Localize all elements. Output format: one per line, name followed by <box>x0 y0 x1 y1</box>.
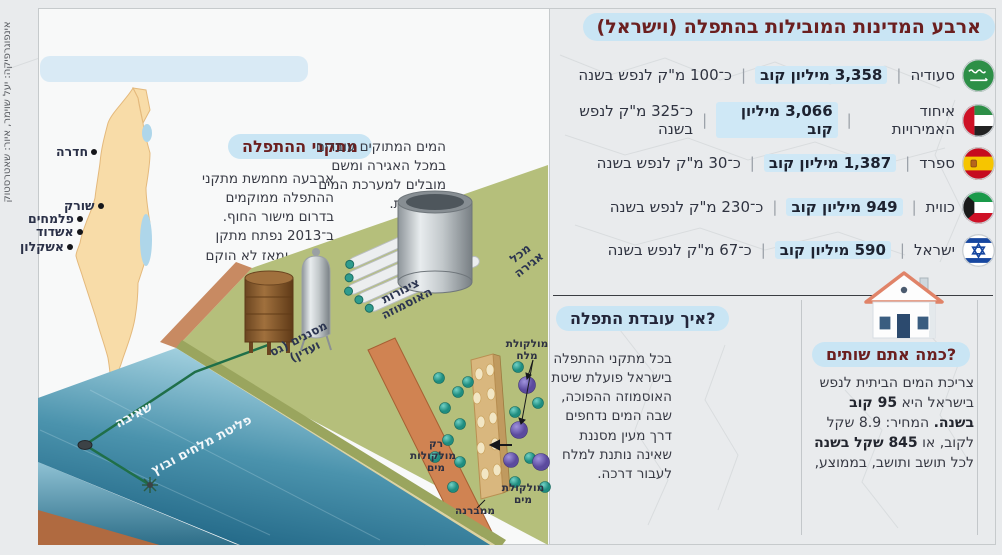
drink-text: צריכת המים הביתית לנפש בישראל היא <box>820 375 975 411</box>
spain-flag-icon <box>962 147 995 180</box>
country-volume: 3,066 מיליון קוב <box>716 102 838 138</box>
separator: | <box>772 198 777 216</box>
drink-text-bold: 845 שקל בשנה <box>814 435 918 451</box>
credit-text: אינפוגרפיקה: יעל שוימר, איור: שאטרסטוק <box>2 6 13 218</box>
drink-body: צריכת המים הביתית לנפש בישראל היא 95 קוב… <box>806 374 974 473</box>
country-row-spain: ספרד| 1,387 מיליון קוב| כ־30 מ"ק לנפש בש… <box>553 146 995 180</box>
column-divider <box>801 300 802 535</box>
country-volume: 1,387 מיליון קוב <box>764 154 896 172</box>
country-per-capita: כ־67 מ"ק לנפש בשנה <box>608 241 752 259</box>
drink-text: לכל תושב ותושב, בממוצע, <box>815 455 974 471</box>
page-title: ארבע המדינות המובילות בהתפלה (וישראל) <box>583 13 995 41</box>
drink-heading-label: כמה אתם שותים? <box>812 342 970 367</box>
country-name: כווית <box>926 198 955 216</box>
country-volume: 590 מיליון קוב <box>775 241 891 259</box>
country-per-capita: כ־30 מ"ק לנפש בשנה <box>597 154 741 172</box>
separator: | <box>761 241 766 259</box>
country-row-israel: ישראל| 590 מיליון קוב| כ־67 מ"ק לנפש בשנ… <box>553 233 995 267</box>
country-per-capita: כ־100 מ"ק לנפש בשנה <box>578 66 732 84</box>
intake-pump <box>78 441 92 450</box>
title-bar: ארבע המדינות המובילות בהתפלה (וישראל) <box>553 13 995 41</box>
country-name: ספרד <box>919 154 955 172</box>
brine-discharge-burst <box>142 477 158 493</box>
kuwait-flag-icon <box>962 191 995 224</box>
drink-heading: כמה אתם שותים? <box>812 342 970 367</box>
separator: | <box>702 111 707 129</box>
israel-flag-icon <box>962 234 995 267</box>
water-molecule-label: מולקולת מים <box>501 482 545 506</box>
separator: | <box>900 241 905 259</box>
country-row-uae: איחוד האמירויות| 3,066 מיליון קוב| כ־325… <box>553 103 995 137</box>
separator: | <box>847 111 852 129</box>
membrane-label: ממברנה <box>450 505 500 517</box>
how-heading: איך עובדת התפלה? <box>556 306 729 331</box>
only-water-label: רק מולקולות מים <box>416 438 456 474</box>
country-volume: 3,358 מיליון קוב <box>755 66 887 84</box>
country-per-capita: כ־325 מ"ק לנפש בשנה <box>553 102 693 138</box>
separator: | <box>896 66 901 84</box>
country-row-kuwait: כווית| 949 מיליון קוב| כ־230 מ"ק לנפש בש… <box>553 190 995 224</box>
house-icon <box>856 268 952 342</box>
country-volume: 949 מיליון קוב <box>786 198 902 216</box>
country-name: איחוד האמירויות <box>861 102 955 138</box>
how-body: בכל מתקני ההתפלה בישראל פועלת שיטת האוסמ… <box>548 350 672 484</box>
infographic-desalination: אינפוגרפיקה: יעל שוימר, איור: שאטרסטוק ח… <box>0 0 1002 555</box>
separator: | <box>741 66 746 84</box>
country-name: סעודיה <box>910 66 955 84</box>
separator: | <box>912 198 917 216</box>
country-per-capita: כ־230 מ"ק לנפש בשנה <box>610 198 764 216</box>
separator: | <box>905 154 910 172</box>
country-row-saudi-arabia: סעודיה| 3,358 מיליון קוב| כ־100 מ"ק לנפש… <box>553 58 995 92</box>
how-heading-label: איך עובדת התפלה? <box>556 306 729 331</box>
right-column-edge <box>977 300 978 535</box>
uae-flag-icon <box>962 104 995 137</box>
country-name: ישראל <box>914 241 955 259</box>
salt-molecule-label: מולקולת מלח <box>503 338 551 362</box>
saudi-arabia-flag-icon <box>962 59 995 92</box>
separator: | <box>750 154 755 172</box>
